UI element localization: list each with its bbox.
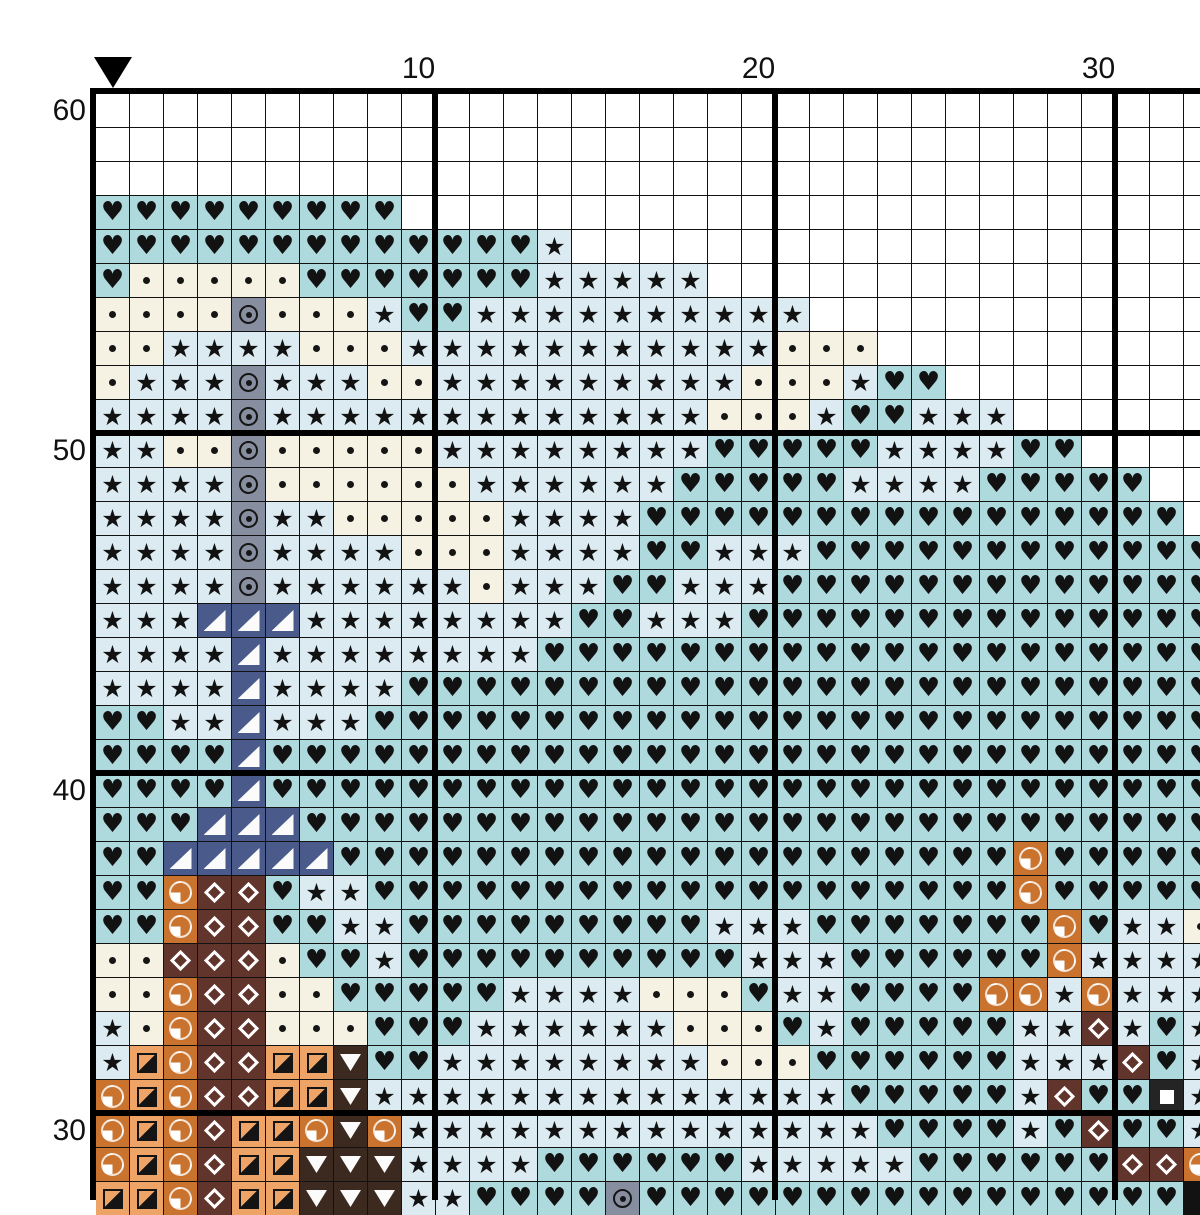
star-icon: ★ [475, 1148, 497, 1181]
grid-cell: ♥ [606, 706, 639, 739]
grid-cell: ♥ [436, 876, 469, 909]
heart-icon: ♥ [1189, 536, 1200, 569]
grid-cell [776, 264, 809, 297]
lower-right-triangle-icon [204, 610, 226, 631]
grid-cell: ♥ [708, 706, 741, 739]
grid-cell: ♥ [1082, 808, 1115, 841]
grid-cell: ♥ [606, 774, 639, 807]
star-icon: ★ [135, 468, 157, 501]
heart-icon: ♥ [985, 672, 1008, 705]
heart-icon: ♥ [645, 1148, 668, 1181]
grid-cell [266, 944, 299, 977]
heart-icon: ♥ [271, 196, 294, 229]
heart-icon: ♥ [713, 774, 736, 807]
heart-icon: ♥ [883, 1046, 906, 1079]
heart-icon: ♥ [577, 944, 600, 977]
grid-cell: ♥ [674, 1182, 707, 1215]
grid-cell: ♥ [1048, 774, 1081, 807]
grid-cell: ♥ [878, 910, 911, 943]
star-icon: ★ [373, 604, 395, 637]
grid-cell [232, 434, 265, 467]
grid-cell: ♥ [1116, 1182, 1149, 1215]
column-label: 20 [719, 52, 799, 86]
heart-icon: ♥ [679, 876, 702, 909]
star-icon: ★ [305, 502, 327, 535]
heart-icon: ♥ [1121, 468, 1144, 501]
dot-icon [109, 991, 116, 998]
heart-icon: ♥ [441, 910, 464, 943]
star-icon: ★ [373, 910, 395, 943]
grid-cell [640, 128, 673, 161]
heart-icon: ♥ [815, 468, 838, 501]
heart-icon: ♥ [917, 706, 940, 739]
grid-cell: ♥ [96, 910, 129, 943]
quarter-circle-icon [305, 1119, 328, 1142]
star-icon: ★ [339, 366, 361, 399]
grid-cell [232, 638, 265, 671]
heart-icon: ♥ [951, 1080, 974, 1113]
star-icon: ★ [1087, 1046, 1109, 1079]
grid-cell: ♥ [164, 808, 197, 841]
heart-icon: ♥ [1155, 706, 1178, 739]
grid-cell: ♥ [96, 774, 129, 807]
grid-cell: ★ [572, 570, 605, 603]
quarter-circle-icon [1019, 881, 1042, 904]
star-icon: ★ [271, 536, 293, 569]
heart-icon: ♥ [101, 910, 124, 943]
grid-cell: ★ [164, 502, 197, 535]
heart-icon: ♥ [577, 774, 600, 807]
grid-cell: ♥ [436, 842, 469, 875]
grid-cell: ♥ [878, 706, 911, 739]
grid-cell: ♥ [1150, 740, 1183, 773]
grid-cell [810, 196, 843, 229]
star-icon: ★ [543, 230, 565, 263]
grid-cell [300, 1182, 333, 1215]
grid-cell: ♥ [538, 876, 571, 909]
star-icon: ★ [883, 1148, 905, 1181]
grid-cell: ♥ [1014, 468, 1047, 501]
star-icon: ★ [271, 332, 293, 365]
grid-cell: ♥ [436, 298, 469, 331]
star-icon: ★ [441, 570, 463, 603]
heart-icon: ♥ [747, 468, 770, 501]
grid-cell [810, 94, 843, 127]
grid-cell: ♥ [96, 196, 129, 229]
star-icon: ★ [339, 536, 361, 569]
star-icon: ★ [271, 366, 293, 399]
grid-cell: ♥ [878, 638, 911, 671]
grid-cell: ★ [164, 706, 197, 739]
grid-cell: ♥ [1014, 1182, 1047, 1215]
grid-cell: ♥ [776, 774, 809, 807]
quarter-circle-icon [101, 1153, 124, 1176]
grid-cell: ★ [130, 604, 163, 637]
grid-cell: ★ [402, 400, 435, 433]
heart-icon: ♥ [713, 502, 736, 535]
grid-cell: ♥ [300, 230, 333, 263]
heart-icon: ♥ [1087, 570, 1110, 603]
grid-cell [470, 94, 503, 127]
dot-icon [381, 447, 388, 454]
star-icon: ★ [645, 1046, 667, 1079]
heart-icon: ♥ [135, 910, 158, 943]
heavy-vertical-line [432, 88, 438, 1200]
grid-cell [1014, 230, 1047, 263]
lower-right-triangle-icon [306, 848, 328, 869]
star-icon: ★ [475, 1114, 497, 1147]
diamond-outline-icon [1088, 1018, 1109, 1039]
grid-cell: ♥ [980, 604, 1013, 637]
grid-cell: ♥ [402, 230, 435, 263]
heart-icon: ♥ [611, 808, 634, 841]
heart-icon: ♥ [713, 1148, 736, 1181]
heart-icon: ♥ [1121, 1182, 1144, 1215]
star-icon: ★ [713, 366, 735, 399]
grid-cell [266, 842, 299, 875]
grid-cell: ♥ [334, 740, 367, 773]
star-icon: ★ [509, 1046, 531, 1079]
grid-cell: ♥ [1082, 638, 1115, 671]
heart-icon: ♥ [1087, 1182, 1110, 1215]
down-triangle-icon [374, 1156, 395, 1173]
grid-cell: ♥ [810, 706, 843, 739]
grid-cell: ♥ [572, 1148, 605, 1181]
grid-cell: ♥ [1150, 1182, 1183, 1215]
dot-icon [211, 447, 218, 454]
heart-icon: ♥ [883, 978, 906, 1011]
grid-cell [436, 128, 469, 161]
heart-icon: ♥ [883, 740, 906, 773]
grid-cell: ♥ [674, 638, 707, 671]
grid-cell: ★ [96, 1012, 129, 1045]
grid-cell: ♥ [912, 672, 945, 705]
star-icon: ★ [679, 570, 701, 603]
heart-icon: ♥ [781, 672, 804, 705]
grid-cell [1184, 400, 1200, 433]
heart-icon: ♥ [1189, 876, 1200, 909]
grid-cell: ♥ [1150, 604, 1183, 637]
grid-cell: ♥ [980, 1080, 1013, 1113]
heart-icon: ♥ [135, 740, 158, 773]
grid-cell [776, 1046, 809, 1079]
grid-cell: ♥ [1082, 1148, 1115, 1181]
grid-cell: ♥ [878, 978, 911, 1011]
star-icon: ★ [1019, 1114, 1041, 1147]
star-icon: ★ [1189, 1046, 1200, 1079]
grid-cell [300, 298, 333, 331]
grid-cell: ♥ [980, 910, 1013, 943]
grid-cell [470, 128, 503, 161]
heart-icon: ♥ [713, 740, 736, 773]
grid-cell: ♥ [946, 842, 979, 875]
grid-cell: ★ [368, 400, 401, 433]
grid-cell: ★ [606, 400, 639, 433]
grid-cell: ♥ [912, 1046, 945, 1079]
heart-icon: ♥ [815, 1046, 838, 1079]
grid-cell: ♥ [538, 774, 571, 807]
heart-icon: ♥ [1053, 706, 1076, 739]
star-icon: ★ [203, 672, 225, 705]
dot-icon [687, 1025, 694, 1032]
grid-cell [130, 1046, 163, 1079]
star-icon: ★ [747, 570, 769, 603]
heart-icon: ♥ [917, 978, 940, 1011]
grid-cell: ♥ [1150, 876, 1183, 909]
heart-icon: ♥ [135, 876, 158, 909]
grid-cell: ♥ [1048, 638, 1081, 671]
grid-cell: ♥ [946, 1148, 979, 1181]
grid-cell: ♥ [402, 876, 435, 909]
star-icon: ★ [713, 332, 735, 365]
grid-cell [300, 842, 333, 875]
heart-icon: ♥ [1053, 502, 1076, 535]
grid-cell [1082, 434, 1115, 467]
grid-cell [1116, 162, 1149, 195]
heart-icon: ♥ [815, 672, 838, 705]
heart-icon: ♥ [373, 706, 396, 739]
grid-cell: ♥ [164, 196, 197, 229]
heart-icon: ♥ [611, 638, 634, 671]
grid-cell: ♥ [708, 808, 741, 841]
heart-icon: ♥ [339, 842, 362, 875]
grid-cell: ♥ [1150, 672, 1183, 705]
grid-cell [266, 1114, 299, 1147]
grid-cell: ♥ [334, 944, 367, 977]
grid-cell: ♥ [470, 774, 503, 807]
grid-cell [708, 264, 741, 297]
heart-icon: ♥ [1155, 740, 1178, 773]
grid-cell: ♥ [1082, 570, 1115, 603]
heart-icon: ♥ [509, 944, 532, 977]
grid-cell: ♥ [572, 604, 605, 637]
grid-cell: ★ [504, 298, 537, 331]
star-icon: ★ [747, 332, 769, 365]
star-icon: ★ [713, 604, 735, 637]
star-icon: ★ [781, 1148, 803, 1181]
grid-cell: ♥ [674, 808, 707, 841]
heart-icon: ♥ [441, 672, 464, 705]
grid-cell: ♥ [844, 808, 877, 841]
grid-cell [232, 1148, 265, 1181]
star-icon: ★ [951, 434, 973, 467]
grid-cell: ♥ [1116, 672, 1149, 705]
grid-cell: ★ [708, 366, 741, 399]
grid-cell: ♥ [1082, 706, 1115, 739]
grid-cell: ★ [96, 604, 129, 637]
heart-icon: ♥ [271, 774, 294, 807]
grid-cell: ♥ [742, 740, 775, 773]
grid-cell: ♥ [878, 740, 911, 773]
grid-cell [232, 774, 265, 807]
grid-cell: ♥ [1048, 536, 1081, 569]
heart-icon: ♥ [985, 1046, 1008, 1079]
star-icon: ★ [135, 638, 157, 671]
heart-icon: ♥ [917, 1046, 940, 1079]
half-square-diagonal-icon [273, 1087, 293, 1107]
grid-cell [946, 264, 979, 297]
grid-cell: ♥ [640, 910, 673, 943]
heart-icon: ♥ [577, 1148, 600, 1181]
dot-icon [381, 345, 388, 352]
grid-cell: ★ [402, 1114, 435, 1147]
grid-cell: ★ [164, 536, 197, 569]
half-square-diagonal-icon [307, 1053, 327, 1073]
star-icon: ★ [271, 502, 293, 535]
heart-icon: ♥ [1155, 672, 1178, 705]
grid-cell: ★ [266, 502, 299, 535]
grid-cell [198, 264, 231, 297]
star-icon: ★ [543, 570, 565, 603]
dot-icon [415, 549, 422, 556]
grid-cell [1048, 910, 1081, 943]
grid-cell: ♥ [538, 944, 571, 977]
star-icon: ★ [475, 604, 497, 637]
heart-icon: ♥ [985, 1148, 1008, 1181]
heart-icon: ♥ [203, 230, 226, 263]
grid-cell: ♥ [300, 196, 333, 229]
grid-cell: ★ [368, 298, 401, 331]
grid-cell [1048, 128, 1081, 161]
grid-cell: ♥ [1082, 842, 1115, 875]
star-icon: ★ [407, 1114, 429, 1147]
grid-cell [674, 196, 707, 229]
star-icon: ★ [305, 706, 327, 739]
grid-cell: ★ [776, 1080, 809, 1113]
grid-cell [198, 604, 231, 637]
grid-cell: ♥ [130, 808, 163, 841]
grid-cell: ★ [96, 1046, 129, 1079]
grid-cell: ♥ [980, 1148, 1013, 1181]
down-triangle-icon [374, 1190, 395, 1207]
dot-icon [381, 515, 388, 522]
grid-cell [402, 196, 435, 229]
star-icon: ★ [543, 1114, 565, 1147]
grid-cell [844, 128, 877, 161]
grid-cell: ★ [538, 604, 571, 637]
heart-icon: ♥ [1189, 672, 1200, 705]
grid-cell: ★ [334, 672, 367, 705]
heart-icon: ♥ [441, 740, 464, 773]
heart-icon: ♥ [645, 944, 668, 977]
quarter-circle-icon [985, 983, 1008, 1006]
grid-cell: ★ [198, 638, 231, 671]
heart-icon: ♥ [1053, 468, 1076, 501]
grid-cell: ♥ [946, 978, 979, 1011]
grid-cell: ♥ [844, 672, 877, 705]
heart-icon: ♥ [781, 1182, 804, 1215]
grid-cell: ♥ [130, 910, 163, 943]
grid-cell: ♥ [776, 706, 809, 739]
heart-icon: ♥ [917, 1182, 940, 1215]
grid-cell [232, 604, 265, 637]
grid-cell [96, 978, 129, 1011]
grid-cell [334, 1012, 367, 1045]
grid-cell [538, 196, 571, 229]
grid-cell [232, 740, 265, 773]
grid-cell: ♥ [436, 264, 469, 297]
star-icon: ★ [441, 1046, 463, 1079]
grid-cell [708, 230, 741, 263]
grid-cell [1082, 196, 1115, 229]
heart-icon: ♥ [747, 740, 770, 773]
heart-icon: ♥ [203, 196, 226, 229]
heart-icon: ♥ [849, 808, 872, 841]
dot-icon [823, 379, 830, 386]
grid-cell [334, 1080, 367, 1113]
grid-cell: ★ [640, 366, 673, 399]
grid-cell: ★ [538, 570, 571, 603]
heart-icon: ♥ [441, 944, 464, 977]
grid-cell [96, 1080, 129, 1113]
grid-cell: ♥ [640, 774, 673, 807]
grid-cell [232, 298, 265, 331]
dot-icon [381, 379, 388, 386]
grid-cell: ★ [572, 434, 605, 467]
star-icon: ★ [475, 1046, 497, 1079]
grid-cell: ♥ [1116, 638, 1149, 671]
star-icon: ★ [509, 332, 531, 365]
grid-cell: ♥ [844, 536, 877, 569]
grid-cell: ★ [878, 434, 911, 467]
grid-cell: ♥ [810, 638, 843, 671]
grid-cell [130, 1012, 163, 1045]
grid-cell: ★ [436, 400, 469, 433]
grid-cell: ★ [1048, 978, 1081, 1011]
grid-cell: ♥ [300, 740, 333, 773]
heart-icon: ♥ [1087, 1080, 1110, 1113]
grid-cell: ★ [368, 910, 401, 943]
grid-cell [810, 162, 843, 195]
star-icon: ★ [475, 400, 497, 433]
heart-icon: ♥ [679, 842, 702, 875]
grid-cell: ★ [470, 638, 503, 671]
grid-cell: ♥ [810, 570, 843, 603]
heart-icon: ♥ [747, 638, 770, 671]
grid-cell: ♥ [980, 842, 1013, 875]
grid-cell [164, 264, 197, 297]
star-icon: ★ [441, 400, 463, 433]
quarter-circle-icon [169, 983, 192, 1006]
grid-cell [164, 298, 197, 331]
grid-cell: ♥ [878, 1114, 911, 1147]
star-icon: ★ [645, 468, 667, 501]
star-icon: ★ [135, 434, 157, 467]
grid-cell: ♥ [742, 842, 775, 875]
star-icon: ★ [373, 570, 395, 603]
grid-cell [334, 434, 367, 467]
heart-icon: ♥ [883, 604, 906, 637]
grid-cell: ♥ [504, 774, 537, 807]
grid-cell: ★ [368, 638, 401, 671]
grid-cell: ♥ [368, 264, 401, 297]
heart-icon: ♥ [1189, 808, 1200, 841]
grid-cell [334, 332, 367, 365]
star-icon: ★ [713, 570, 735, 603]
heart-icon: ♥ [441, 706, 464, 739]
grid-cell: ♥ [606, 604, 639, 637]
grid-cell: ★ [334, 876, 367, 909]
grid-cell: ♥ [708, 944, 741, 977]
heart-icon: ♥ [747, 774, 770, 807]
grid-cell: ★ [334, 366, 367, 399]
grid-cell [708, 1046, 741, 1079]
grid-cell: ♥ [334, 230, 367, 263]
heart-icon: ♥ [849, 1046, 872, 1079]
grid-cell [198, 94, 231, 127]
quarter-circle-icon [169, 1153, 192, 1176]
star-icon: ★ [577, 1080, 599, 1113]
